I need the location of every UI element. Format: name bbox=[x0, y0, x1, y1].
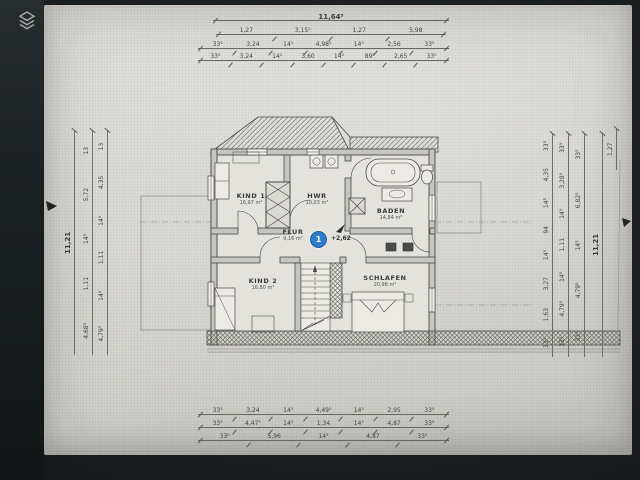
dimension-value: 14⁵ bbox=[80, 217, 93, 260]
dimension-value: 4,79⁵ bbox=[556, 291, 569, 327]
dimension-value: 33⁵ bbox=[398, 433, 447, 441]
dimension-value: 33⁵ bbox=[200, 420, 235, 428]
dimension-value: 14⁵ bbox=[341, 407, 376, 415]
dimension-value: 33⁵ bbox=[200, 41, 235, 49]
top-dim-row-1: 1,273,15⁵1,275,98 bbox=[218, 24, 444, 35]
dimension-value: 4,79⁵ bbox=[572, 266, 585, 314]
dimension-value: 89⁵ bbox=[354, 53, 385, 61]
top-dim-row-2: 33⁵3,2414⁵4,98⁵14⁵2,5633⁵ bbox=[200, 38, 447, 49]
right-dim-outer: 1,27 bbox=[604, 128, 617, 170]
dimension-value: 1,11 bbox=[556, 228, 569, 261]
dimension-value: 1,63 bbox=[540, 300, 553, 330]
dimension-value: 4,87 bbox=[348, 433, 397, 441]
dimension-value: 33⁵ bbox=[416, 53, 447, 61]
bottom-dim-row-3: 33⁵5,9614⁵4,8733⁵ bbox=[200, 430, 447, 441]
dimension-value: 14⁵ bbox=[262, 53, 293, 61]
room-area: 9,16 m² bbox=[282, 236, 303, 242]
room-name: FLUR bbox=[282, 229, 303, 236]
dimension-value: 4,49⁵ bbox=[306, 407, 341, 415]
dimension-value: 5,98 bbox=[388, 27, 445, 35]
dimension-value: 14⁵ bbox=[540, 242, 553, 269]
top-dim-row-3: 33⁵3,2414⁵3,6014⁵89⁵2,6533⁵ bbox=[200, 50, 447, 61]
room-label-kind1: KIND 1 16,97 m² bbox=[237, 193, 266, 206]
dimension-value: 2,65 bbox=[385, 53, 416, 61]
dimension-value: 14⁵ bbox=[556, 262, 569, 292]
dimension-value: 13 bbox=[80, 130, 93, 171]
top-dim-total: 11,64⁵ bbox=[215, 10, 447, 21]
dimension-value: 1,27 bbox=[218, 27, 275, 35]
dimension-value: 2,56 bbox=[376, 41, 411, 49]
dimension-value: 4,47⁵ bbox=[235, 420, 270, 428]
dimension-value: 5,72 bbox=[80, 171, 93, 217]
room-label-baden: BADEN 14,84 m² bbox=[377, 208, 405, 221]
room-label-hwr: HWR 10,03 m² bbox=[306, 193, 329, 206]
level-marker-value: +2,62 bbox=[331, 235, 351, 242]
right-dim-col-2: 33⁵3,28⁵14⁵1,1114⁵4,79⁵33⁵ bbox=[556, 133, 569, 357]
dimension-value: 33⁵ bbox=[540, 133, 553, 160]
dimension-total: 11,21 bbox=[590, 133, 603, 357]
viewer-left-edge bbox=[0, 0, 44, 480]
room-name: BADEN bbox=[377, 208, 405, 215]
dimension-value: 14⁵ bbox=[271, 420, 306, 428]
dimension-value: 33⁵ bbox=[412, 41, 447, 49]
bottom-dim-row-2: 33⁵4,47⁵14⁵1,3414⁵4,8733⁵ bbox=[200, 417, 447, 428]
room-area: 20,98 m² bbox=[363, 282, 406, 288]
dimension-value: 3,27 bbox=[540, 269, 553, 299]
dimension-value: 1,34 bbox=[306, 420, 341, 428]
dimension-value: 2,95 bbox=[376, 407, 411, 415]
level-marker-badge: 1 bbox=[310, 231, 327, 248]
dimension-value: 33⁵ bbox=[200, 433, 249, 441]
dimension-value: 14⁵ bbox=[540, 190, 553, 217]
dimension-value: 33⁵ bbox=[572, 315, 585, 358]
dimension-value: 14⁵ bbox=[572, 224, 585, 267]
dimension-value: 4,35 bbox=[540, 160, 553, 190]
dimension-value: 33⁵ bbox=[556, 133, 569, 163]
dimension-value: 5,96 bbox=[249, 433, 298, 441]
room-area: 10,03 m² bbox=[306, 200, 329, 206]
dimension-value: 33⁵ bbox=[200, 53, 231, 61]
room-area: 16,80 m² bbox=[249, 285, 278, 291]
right-dim-col-1: 33⁵4,3514⁵9414⁵3,271,6333⁵ bbox=[540, 133, 553, 357]
dimension-value: 4,87 bbox=[376, 420, 411, 428]
dimension-value: 94 bbox=[540, 218, 553, 243]
room-label-schlafen: SCHLAFEN 20,98 m² bbox=[363, 275, 406, 288]
room-area: 16,97 m² bbox=[237, 200, 266, 206]
room-label-flur: FLUR 9,16 m² bbox=[282, 229, 303, 242]
dimension-value: 33⁵ bbox=[412, 420, 447, 428]
room-name: HWR bbox=[306, 193, 329, 200]
right-dim-total: 11,21 bbox=[590, 133, 603, 357]
right-dim-col-3: 33⁵6,82⁵14⁵4,79⁵33⁵ bbox=[572, 133, 585, 357]
dimension-value: 14⁵ bbox=[271, 407, 306, 415]
dimension-total: 11,21 bbox=[62, 130, 75, 355]
room-name: SCHLAFEN bbox=[363, 275, 406, 282]
dimension-value: 13 bbox=[95, 130, 108, 163]
dimension-value: 6,82⁵ bbox=[572, 176, 585, 224]
dimension-value: 14⁵ bbox=[95, 278, 108, 314]
left-dim-col-2: 135,7214⁵1,114,68⁵ bbox=[80, 130, 93, 355]
dimension-value: 4,79⁵ bbox=[95, 313, 108, 355]
dimension-value: 3,24 bbox=[235, 407, 270, 415]
dimension-value: 1,11 bbox=[95, 238, 108, 277]
dimension-value: 3,24 bbox=[235, 41, 270, 49]
dimension-value: 4,98⁵ bbox=[306, 41, 341, 49]
layers-icon[interactable] bbox=[16, 9, 38, 33]
dimension-value: 33⁵ bbox=[540, 330, 553, 357]
dimension-value: 33⁵ bbox=[556, 327, 569, 357]
dimension-value: 3,60 bbox=[293, 53, 324, 61]
bottom-dim-row-1: 33⁵3,2414⁵4,49⁵14⁵2,9533⁵ bbox=[200, 404, 447, 415]
dimension-value: 1,27 bbox=[604, 128, 617, 170]
dimension-value: 1,11 bbox=[80, 260, 93, 306]
dimension-value: 4,68⁵ bbox=[80, 306, 93, 355]
dimension-value: 3,24 bbox=[231, 53, 262, 61]
dimension-value: 3,28⁵ bbox=[556, 163, 569, 199]
dimension-value: 14⁵ bbox=[271, 41, 306, 49]
dimension-value: 33⁵ bbox=[572, 133, 585, 176]
dimension-value: 14⁵ bbox=[324, 53, 355, 61]
dimension-value: 4,35 bbox=[95, 163, 108, 202]
dimension-value: 14⁵ bbox=[299, 433, 348, 441]
dimension-value: 33⁵ bbox=[200, 407, 235, 415]
room-label-kind2: KIND 2 16,80 m² bbox=[249, 278, 278, 291]
dimension-value: 3,15⁵ bbox=[275, 27, 332, 35]
dimension-value: 14⁵ bbox=[341, 41, 376, 49]
dimension-value: 1,27 bbox=[331, 27, 388, 35]
left-dim-col-1: 134,3514⁵1,1114⁵4,79⁵ bbox=[95, 130, 108, 355]
photo-viewer: 11,64⁵ 1,273,15⁵1,275,98 33⁵3,2414⁵4,98⁵… bbox=[0, 0, 640, 480]
dimension-value: 33⁵ bbox=[412, 407, 447, 415]
dimension-value: 14⁵ bbox=[341, 420, 376, 428]
room-name: KIND 2 bbox=[249, 278, 278, 285]
left-dim-total: 11,21 bbox=[62, 130, 75, 355]
dimension-value: 14⁵ bbox=[556, 199, 569, 229]
room-area: 14,84 m² bbox=[377, 215, 405, 221]
dimension-value: 14⁵ bbox=[95, 203, 108, 239]
room-name: KIND 1 bbox=[237, 193, 266, 200]
